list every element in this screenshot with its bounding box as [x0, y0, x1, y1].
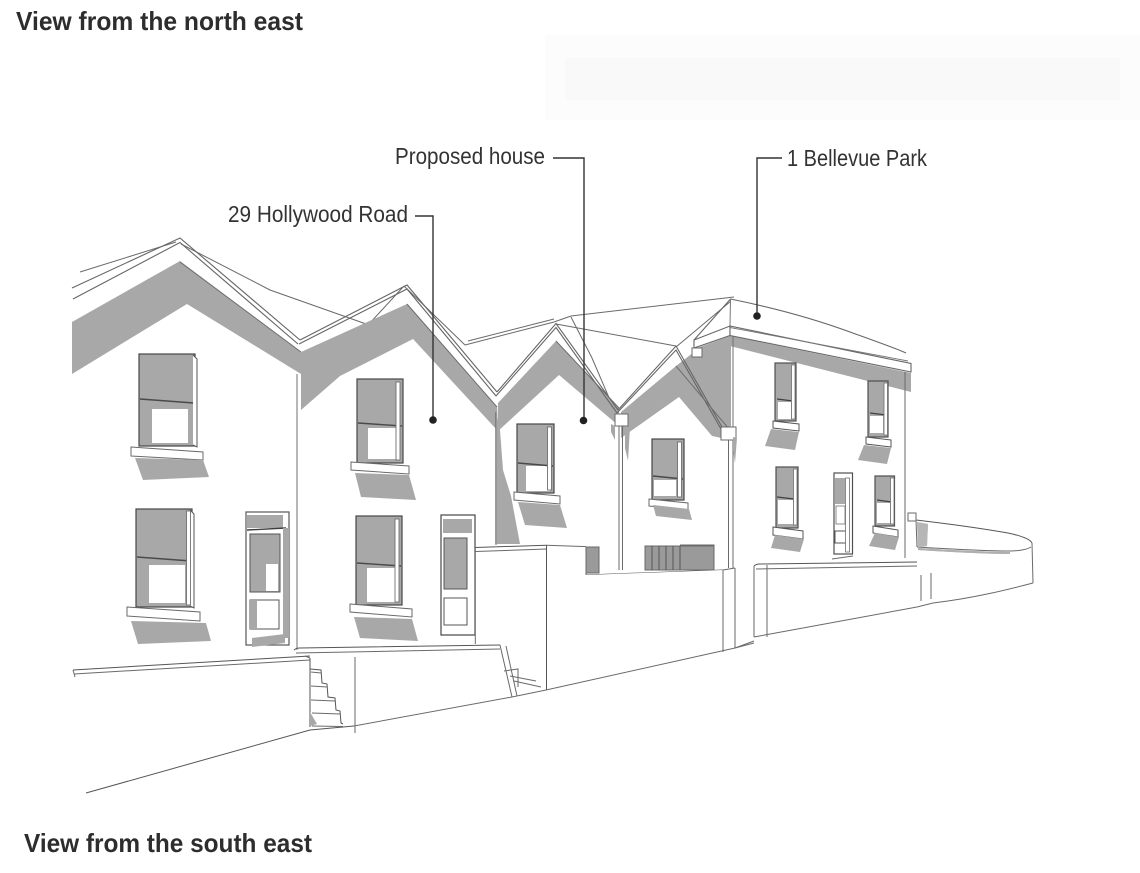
svg-text:View from the south east: View from the south east: [24, 828, 312, 858]
svg-text:1 Bellevue Park: 1 Bellevue Park: [787, 145, 927, 171]
svg-text:Proposed house: Proposed house: [395, 143, 545, 169]
svg-text:View from the north east: View from the north east: [16, 6, 303, 36]
svg-text:29 Hollywood Road: 29 Hollywood Road: [228, 201, 408, 227]
